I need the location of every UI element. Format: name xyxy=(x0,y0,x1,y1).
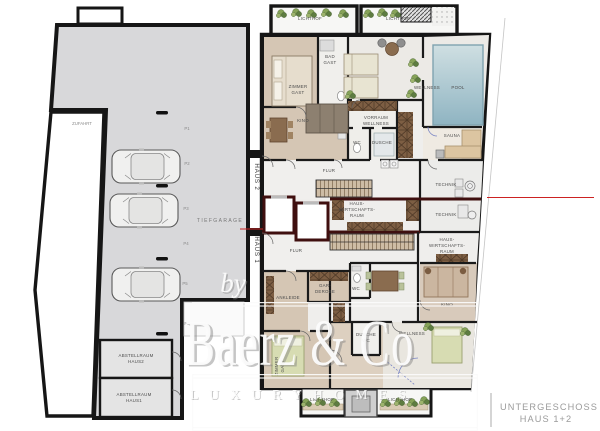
shower-guest xyxy=(320,40,334,51)
label-garderobe-2: DEROBE xyxy=(315,289,335,294)
garage-top-shaft xyxy=(78,8,122,24)
label-kino2: KINO xyxy=(297,118,309,123)
elevator-door-2 xyxy=(303,202,319,205)
floorplan-page: LICHTHOF LICHTHOF ZIMMER GAST BAD GAST K… xyxy=(0,0,600,431)
label-technik1: TECHNIK xyxy=(435,212,456,217)
label-haus2: HAUS 2 xyxy=(253,163,260,190)
title-block: UNTERGESCHOSS HAUS 1+2 xyxy=(491,393,598,427)
label-hwr1-1: HAUS- xyxy=(440,237,455,242)
label-ankleide: ANKLEIDE xyxy=(276,295,300,300)
toilet-wc1 xyxy=(354,274,361,283)
label-zimmer-gast2-2: GAST xyxy=(292,90,305,95)
label-p3: P3 xyxy=(183,206,189,211)
gravel-strip xyxy=(432,7,454,26)
label-technik2: TECHNIK xyxy=(435,182,456,187)
label-hwr2-2: WIRTSCHAFTS- xyxy=(339,207,375,212)
table-haus1 xyxy=(366,271,404,291)
label-vorraum-2: WELLNESS xyxy=(363,121,389,126)
label-flur2: FLUR xyxy=(323,168,335,173)
label-vorraum-1: VORRAUM xyxy=(364,115,388,120)
cabinet-hwr1 xyxy=(436,254,468,262)
label-flur1: FLUR xyxy=(290,248,302,253)
watermark-by: by xyxy=(220,268,246,298)
label-hwr1-3: RAUM xyxy=(440,249,454,254)
label-p1: P1 xyxy=(184,126,190,131)
watermark-brand: Baerz & Co xyxy=(185,308,415,380)
car-3 xyxy=(112,267,180,303)
plan-title-line1: UNTERGESCHOSS xyxy=(500,402,598,412)
label-wellness2: WELLNESS xyxy=(414,85,440,90)
label-pool: POOL xyxy=(451,85,465,90)
cabinet-garderobe xyxy=(310,272,348,281)
label-hwr2-1: HAUS- xyxy=(350,201,365,206)
label-haus1: HAUS 1 xyxy=(253,236,260,263)
label-abstellraum1-1: ABSTELLRAUM xyxy=(117,392,152,397)
label-bad-gast-1: BAD xyxy=(325,54,335,59)
elevator-door-1 xyxy=(271,196,287,199)
cabinet-hwr2 xyxy=(347,222,403,231)
sofa-kino-haus1 xyxy=(424,267,468,297)
watermark-tagline: L U X U R Y H O M E S xyxy=(190,387,410,402)
label-abstellraum1-2: HAUS1 xyxy=(126,398,142,403)
cabinet-hwr2-side xyxy=(406,200,419,221)
floorplan-drawing: LICHTHOF LICHTHOF ZIMMER GAST BAD GAST K… xyxy=(0,0,600,431)
label-p4: P4 xyxy=(183,241,189,246)
cabinet-column xyxy=(398,112,413,158)
cabinet-vorraum xyxy=(348,101,397,111)
label-dusche2: DUSCHE xyxy=(372,140,392,145)
label-bad-gast-2: GAST xyxy=(324,60,337,65)
label-p5: P5 xyxy=(182,281,188,286)
plan-title-line2: HAUS 1+2 xyxy=(520,414,572,424)
label-wc2: WC xyxy=(353,140,361,145)
label-hwr1-2: WIRTSCHAFTS- xyxy=(429,243,465,248)
label-hwr2-3: RAUM xyxy=(350,213,364,218)
car-2 xyxy=(110,193,178,229)
sink-wc1 xyxy=(352,266,361,271)
label-zufahrt: ZUFAHRT xyxy=(72,121,92,126)
label-lichthof-top-right: LICHTHOF xyxy=(386,16,410,21)
label-garderobe-1: GAR- xyxy=(319,283,331,288)
driveway-ramp xyxy=(35,112,104,416)
bed-guest-haus2 xyxy=(272,56,312,106)
label-sauna: SAUNA xyxy=(444,133,460,138)
elevator-shaft-2 xyxy=(296,203,328,240)
label-abstellraum2-2: HAUS2 xyxy=(128,359,144,364)
toilet-guest xyxy=(337,91,344,101)
label-abstellraum2-1: ABSTELLRAUM xyxy=(119,353,154,358)
car-1 xyxy=(112,149,180,185)
label-lichthof-top-left: LICHTHOF xyxy=(298,16,322,21)
elevator-shaft-1 xyxy=(264,197,294,233)
bed-wellness-haus1 xyxy=(432,327,462,363)
label-p2: P2 xyxy=(184,161,190,166)
label-zimmer-gast2-1: ZIMMER xyxy=(289,84,308,89)
label-tiefgarage: TIEFGARAGE xyxy=(197,218,243,224)
sofa-kino-haus2 xyxy=(306,104,348,133)
label-wc1: WC xyxy=(352,286,360,291)
